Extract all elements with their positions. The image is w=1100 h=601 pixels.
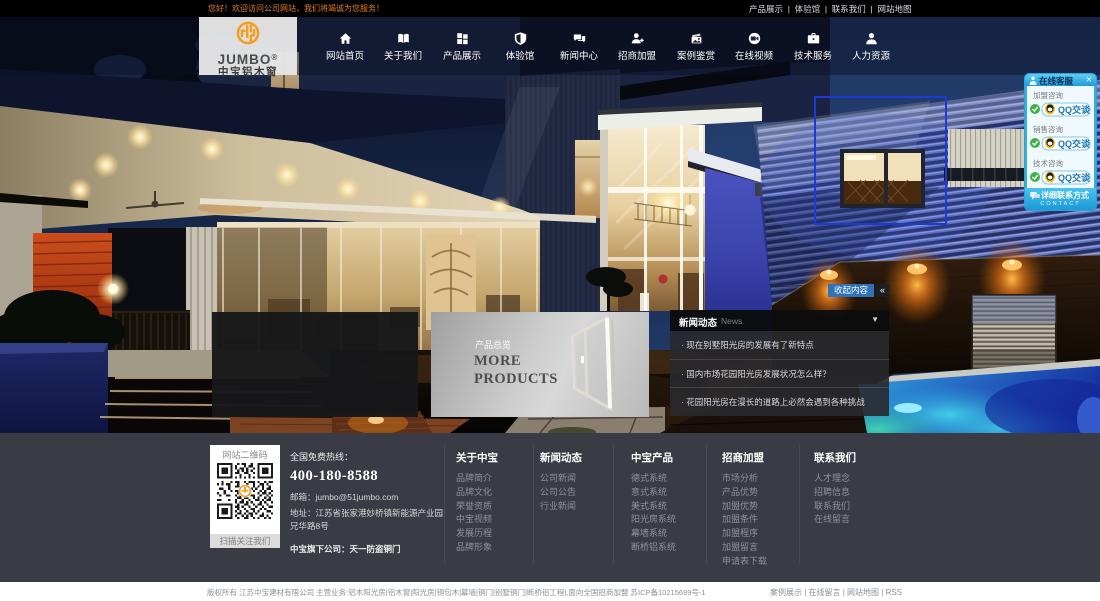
svg-text:QQ交谈: QQ交谈	[1058, 138, 1091, 149]
svg-text:QQ交谈: QQ交谈	[1058, 104, 1091, 115]
svg-text:QQ交谈: QQ交谈	[1058, 172, 1091, 183]
